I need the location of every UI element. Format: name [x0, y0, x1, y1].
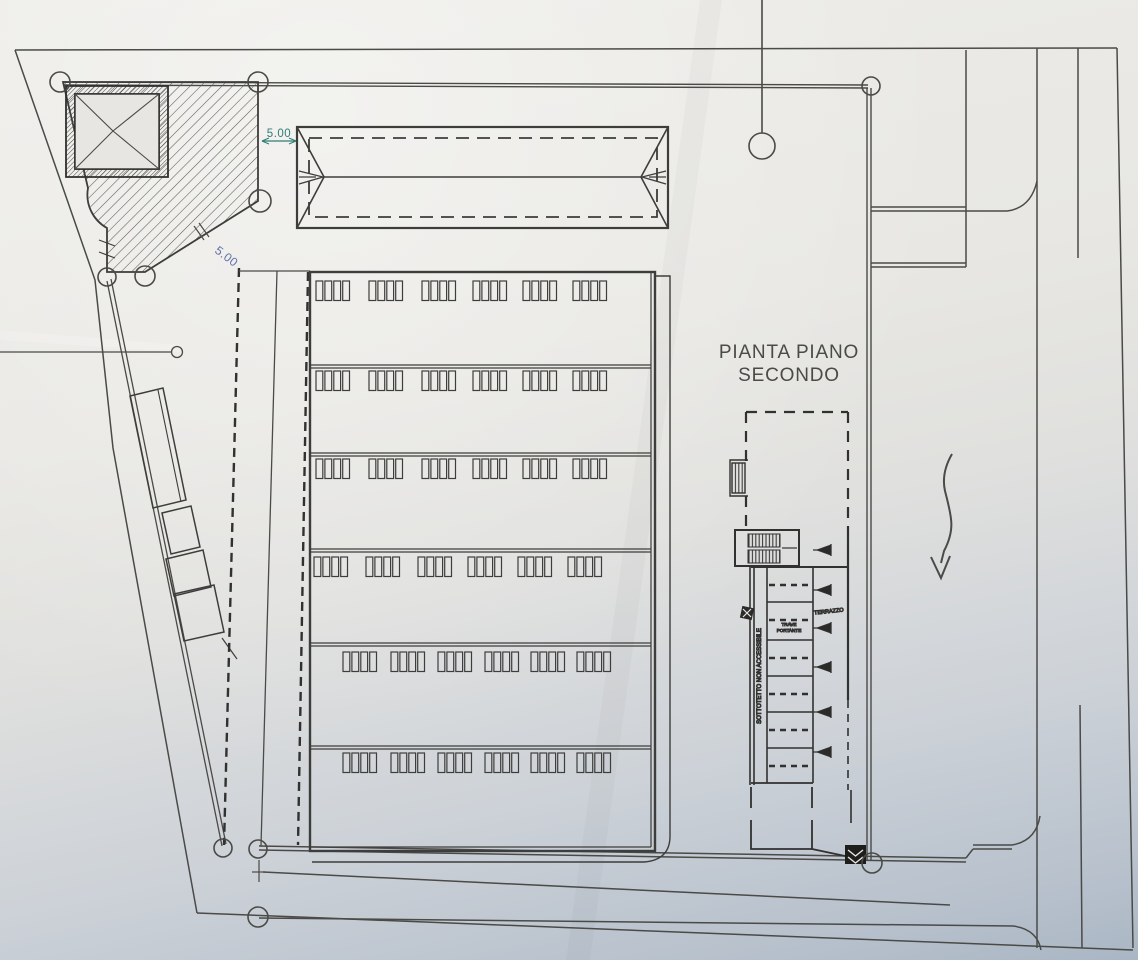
window-pane — [418, 652, 425, 672]
dimension-diagonal-label: 5.00 — [212, 243, 241, 269]
window-pane — [595, 557, 602, 577]
window-pane — [595, 652, 602, 672]
window-pane — [384, 557, 391, 577]
window-pane — [396, 459, 403, 479]
boundary-top — [15, 48, 1117, 50]
driveway-fillet-1 — [1012, 816, 1040, 845]
lane-line-lower — [1080, 705, 1082, 948]
window-pane — [378, 281, 385, 301]
window-pane — [361, 652, 368, 672]
window-pane — [378, 371, 385, 391]
window-pane — [523, 281, 530, 301]
window-pane — [503, 753, 510, 773]
window-pane — [387, 281, 394, 301]
window-pane — [378, 459, 385, 479]
window-pane — [396, 281, 403, 301]
courtyard-lines — [224, 268, 310, 882]
window-pane — [503, 652, 510, 672]
window-pane — [438, 753, 445, 773]
window-pane — [485, 753, 492, 773]
window-pane — [387, 371, 394, 391]
window-pane — [549, 652, 556, 672]
window-pane — [532, 371, 539, 391]
window-pane — [577, 652, 584, 672]
window-pane — [550, 459, 557, 479]
window-pane — [500, 371, 507, 391]
hatched-roof-area — [63, 82, 258, 272]
door-flag — [813, 544, 831, 556]
window-pane — [400, 652, 407, 672]
window-pane — [586, 652, 593, 672]
window-pane — [332, 557, 339, 577]
window-pane — [343, 753, 350, 773]
beam-label-1: TRAVE — [782, 622, 797, 627]
window-pane — [494, 753, 501, 773]
window-pane — [485, 652, 492, 672]
site-plan-drawing: 5.00 5.00 — [0, 0, 1138, 960]
window-pane — [409, 753, 416, 773]
hip-roof — [297, 127, 668, 228]
scanned-floor-plan: 5.00 5.00 — [0, 0, 1138, 960]
window-pane — [491, 371, 498, 391]
dashed-outline — [746, 412, 848, 530]
window-pane — [431, 281, 438, 301]
window-pane — [422, 281, 429, 301]
title-line-2: SECONDO — [738, 365, 840, 386]
south-step — [966, 849, 973, 858]
direction-arrow — [931, 454, 952, 578]
door-flag — [813, 661, 831, 673]
slope-arrow-left — [299, 171, 323, 184]
paper-crease-2 — [0, 330, 180, 352]
window-pane — [518, 557, 525, 577]
window-pane — [577, 557, 584, 577]
window-pane — [494, 652, 501, 672]
vent-symbol — [740, 606, 754, 620]
window-pane — [577, 753, 584, 773]
garage-3 — [166, 550, 211, 596]
window-pane — [422, 371, 429, 391]
window-pane — [591, 281, 598, 301]
window-pane — [325, 371, 332, 391]
window-pane — [352, 753, 359, 773]
window-pane — [558, 753, 565, 773]
window-pane — [418, 557, 425, 577]
window-pane — [323, 557, 330, 577]
window-pane — [316, 459, 323, 479]
window-pane — [582, 459, 589, 479]
window-pane — [436, 557, 443, 577]
window-pane — [334, 281, 341, 301]
window-pane — [369, 281, 376, 301]
terrace-label: TERRAZZO — [814, 607, 845, 616]
window-pane — [343, 459, 350, 479]
window-pane — [540, 652, 547, 672]
window-pane — [370, 652, 377, 672]
window-rows — [314, 281, 611, 773]
window-pane — [440, 371, 447, 391]
garage-4 — [174, 585, 224, 641]
garage-2 — [162, 506, 200, 554]
window-pane — [486, 557, 493, 577]
room-partitions — [767, 544, 831, 766]
window-pane — [334, 459, 341, 479]
door-flag — [813, 706, 831, 718]
window-pane — [531, 652, 538, 672]
lower-rooms — [751, 783, 845, 856]
window-pane — [391, 753, 398, 773]
window-pane — [586, 753, 593, 773]
window-pane — [541, 459, 548, 479]
window-pane — [396, 371, 403, 391]
window-pane — [523, 459, 530, 479]
window-pane — [447, 652, 454, 672]
slope-arrow-right — [642, 171, 666, 184]
south-mid-line — [263, 872, 950, 905]
window-pane — [343, 371, 350, 391]
door-flag — [813, 584, 831, 596]
window-pane — [341, 557, 348, 577]
window-pane — [500, 281, 507, 301]
window-pane — [449, 371, 456, 391]
window-pane — [532, 281, 539, 301]
chimney-block — [730, 460, 748, 496]
window-pane — [586, 557, 593, 577]
beam-label-2: PORTANTE — [777, 628, 802, 633]
window-pane — [477, 557, 484, 577]
drawing-title: PIANTA PIANO SECONDO — [719, 342, 859, 386]
south-road-line — [259, 918, 1013, 926]
west-fence — [0, 279, 226, 846]
window-pane — [465, 652, 472, 672]
window-pane — [536, 557, 543, 577]
window-pane — [482, 371, 489, 391]
window-pane — [400, 753, 407, 773]
window-pane — [512, 652, 519, 672]
marker-circle — [749, 133, 775, 159]
window-pane — [600, 281, 607, 301]
window-pane — [491, 281, 498, 301]
window-pane — [366, 557, 373, 577]
window-pane — [591, 459, 598, 479]
window-pane — [343, 281, 350, 301]
window-pane — [573, 281, 580, 301]
window-pane — [409, 652, 416, 672]
window-pane — [573, 459, 580, 479]
window-pane — [568, 557, 575, 577]
window-pane — [314, 557, 321, 577]
window-pane — [447, 753, 454, 773]
reference-marker — [749, 0, 775, 159]
dimension-top: 5.00 — [262, 128, 296, 144]
window-pane — [343, 652, 350, 672]
window-pane — [540, 753, 547, 773]
window-pane — [422, 459, 429, 479]
main-building — [310, 272, 670, 862]
window-pane — [600, 459, 607, 479]
curb-fillet-top — [966, 181, 1037, 211]
floor-plan-detail: SOTTOTETTO NON ACCESSIBILE TERRAZZO TRAV… — [730, 412, 866, 864]
window-pane — [541, 371, 548, 391]
window-pane — [438, 652, 445, 672]
window-pane — [431, 459, 438, 479]
window-pane — [495, 557, 502, 577]
window-pane — [512, 753, 519, 773]
window-pane — [352, 652, 359, 672]
window-pane — [491, 459, 498, 479]
window-pane — [482, 281, 489, 301]
window-pane — [375, 557, 382, 577]
window-pane — [456, 753, 463, 773]
boundary-right — [1117, 48, 1133, 948]
window-pane — [370, 753, 377, 773]
window-pane — [532, 459, 539, 479]
window-pane — [334, 371, 341, 391]
window-pane — [527, 557, 534, 577]
window-pane — [582, 371, 589, 391]
window-pane — [500, 459, 507, 479]
window-pane — [431, 371, 438, 391]
door-flag — [813, 746, 831, 758]
window-pane — [482, 459, 489, 479]
window-pane — [325, 281, 332, 301]
window-pane — [468, 557, 475, 577]
window-pane — [369, 371, 376, 391]
window-pane — [523, 371, 530, 391]
window-pane — [427, 557, 434, 577]
window-pane — [545, 557, 552, 577]
window-pane — [325, 459, 332, 479]
dimension-top-label: 5.00 — [267, 128, 291, 140]
window-pane — [440, 281, 447, 301]
window-pane — [449, 281, 456, 301]
window-pane — [316, 371, 323, 391]
window-pane — [473, 459, 480, 479]
paper-crease — [566, 0, 722, 960]
door-flag — [813, 622, 831, 634]
window-pane — [361, 753, 368, 773]
window-pane — [393, 557, 400, 577]
window-pane — [449, 459, 456, 479]
window-pane — [465, 753, 472, 773]
window-pane — [387, 459, 394, 479]
title-line-1: PIANTA PIANO — [719, 342, 859, 363]
window-pane — [558, 652, 565, 672]
window-pane — [600, 371, 607, 391]
window-pane — [573, 371, 580, 391]
garage-1 — [130, 388, 186, 508]
window-pane — [550, 281, 557, 301]
tower-roof — [66, 86, 168, 177]
garage-row — [130, 388, 237, 659]
attic-corridor-label: SOTTOTETTO NON ACCESSIBILE — [757, 628, 763, 724]
window-pane — [591, 371, 598, 391]
window-pane — [445, 557, 452, 577]
window-pane — [473, 281, 480, 301]
window-pane — [369, 459, 376, 479]
window-pane — [550, 371, 557, 391]
window-pane — [456, 652, 463, 672]
stairs — [735, 530, 799, 566]
window-pane — [418, 753, 425, 773]
window-pane — [316, 281, 323, 301]
window-pane — [473, 371, 480, 391]
window-pane — [582, 281, 589, 301]
window-pane — [541, 281, 548, 301]
window-pane — [391, 652, 398, 672]
window-pane — [549, 753, 556, 773]
window-pane — [440, 459, 447, 479]
window-pane — [531, 753, 538, 773]
